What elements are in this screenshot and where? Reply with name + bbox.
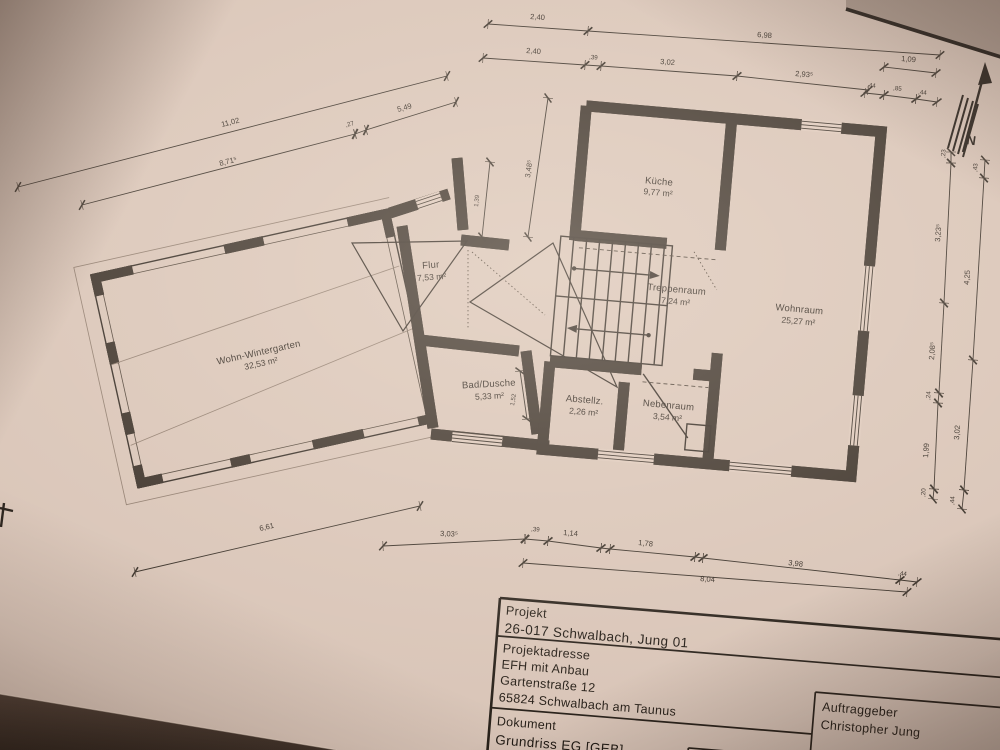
dim-label: 8,04 (700, 574, 716, 584)
room-label-bad: Bad/Dusche (462, 378, 516, 392)
dim-label: 2,93⁵ (795, 69, 814, 80)
dim-label: ,27 (345, 120, 356, 129)
dim-label: 3,98 (788, 558, 804, 569)
dimension-chains: 2,40 6,98 2,40 ,39 3,02 2,93⁵ 1,09 ,44 ,… (18, 12, 985, 592)
room-area-abstellz: 2,26 m² (569, 406, 599, 419)
dim-label: 4,25 (962, 270, 972, 285)
dim-label: 1,39 (473, 194, 481, 207)
dim-label: ,85 (893, 85, 903, 93)
title-block: Projekt 26-017 Schwalbach, Jung 01 Proje… (487, 598, 1000, 750)
window-bottom-right (729, 462, 791, 474)
dim-label: ,43 (972, 163, 980, 173)
room-area-kueche: 9,77 m² (643, 186, 673, 199)
room-area-wohnraum: 25,27 m² (781, 315, 816, 328)
adresse-line-3: 65824 Schwalbach am Taunus (498, 690, 676, 719)
dokument-value: Grundriss EG [GEB] (495, 732, 625, 750)
dim-label: 2,40 (526, 46, 541, 56)
window-right-upper (860, 266, 873, 331)
dim-label: 1,52 (509, 393, 518, 407)
dim-label: 1,09 (901, 54, 917, 64)
dim-label: 3,03⁵ (440, 529, 458, 539)
floor-plan-photo: Wohn-Wintergarten 32,53 m² Flur 7,53 m² … (0, 0, 1000, 750)
room-label-nebenraum: Nebenraum (642, 398, 694, 413)
main-room-labels: Küche 9,77 m² Wohnraum 25,27 m² Treppenr… (564, 170, 833, 437)
dim-label: 6,61 (258, 521, 274, 533)
dim-label: ,20 (920, 488, 928, 498)
room-area-flur: 7,53 m² (417, 271, 447, 283)
dim-label: 3,48⁵ (523, 159, 534, 178)
dim-label: 1,14 (563, 528, 579, 538)
staircase (550, 236, 672, 365)
left-edge-mark (0, 503, 13, 527)
main-walls (542, 101, 885, 480)
dim-label: ,24 (925, 391, 933, 401)
dokument-label: Dokument (496, 714, 557, 733)
projekt-label: Projekt (505, 604, 547, 621)
room-label-flur: Flur (422, 259, 440, 271)
dim-label: ,44 (867, 82, 877, 90)
auftraggeber-value: Christopher Jung (820, 718, 921, 740)
window-top (801, 121, 841, 131)
dim-label: ,44 (949, 496, 957, 506)
dim-label: 5,49 (396, 101, 413, 114)
annex-wintergarten: Wohn-Wintergarten 32,53 m² (74, 198, 442, 505)
auftraggeber-label: Auftraggeber (822, 700, 899, 720)
main-building: Küche 9,77 m² Wohnraum 25,27 m² Treppenr… (542, 101, 885, 480)
room-area-bad: 5,33 m² (475, 390, 505, 402)
dim-label: 11,02 (220, 116, 240, 129)
dim-label: 6,98 (757, 30, 772, 40)
photo-artifacts (0, 0, 1000, 750)
dim-label: 3,02 (952, 425, 962, 440)
dim-label: 1,78 (638, 538, 654, 548)
north-arrow: N (948, 62, 992, 157)
dim-label: 8,71⁵ (218, 155, 238, 168)
dim-label: 1,99 (921, 443, 931, 458)
door-and-dashed-details (562, 242, 726, 452)
dim-label: ,44 (898, 570, 908, 578)
window-right-lower (850, 395, 861, 445)
room-area-nebenraum: 3,54 m² (653, 411, 683, 424)
north-label: N (966, 132, 977, 148)
north-arrow-head (978, 62, 992, 85)
dim-label: 3,02 (660, 57, 675, 67)
dim-label: ,39 (531, 526, 541, 534)
floor-plan-drawing: Wohn-Wintergarten 32,53 m² Flur 7,53 m² … (0, 0, 1000, 750)
dim-label: ,44 (918, 89, 928, 97)
dim-label: ,23 (940, 149, 948, 159)
dim-label: 2,08⁵ (927, 342, 937, 361)
dim-label: ,39 (589, 54, 599, 62)
dim-label: 2,40 (530, 12, 545, 22)
window-bottom-left (598, 451, 654, 463)
dim-label: 3,23⁵ (933, 224, 943, 243)
